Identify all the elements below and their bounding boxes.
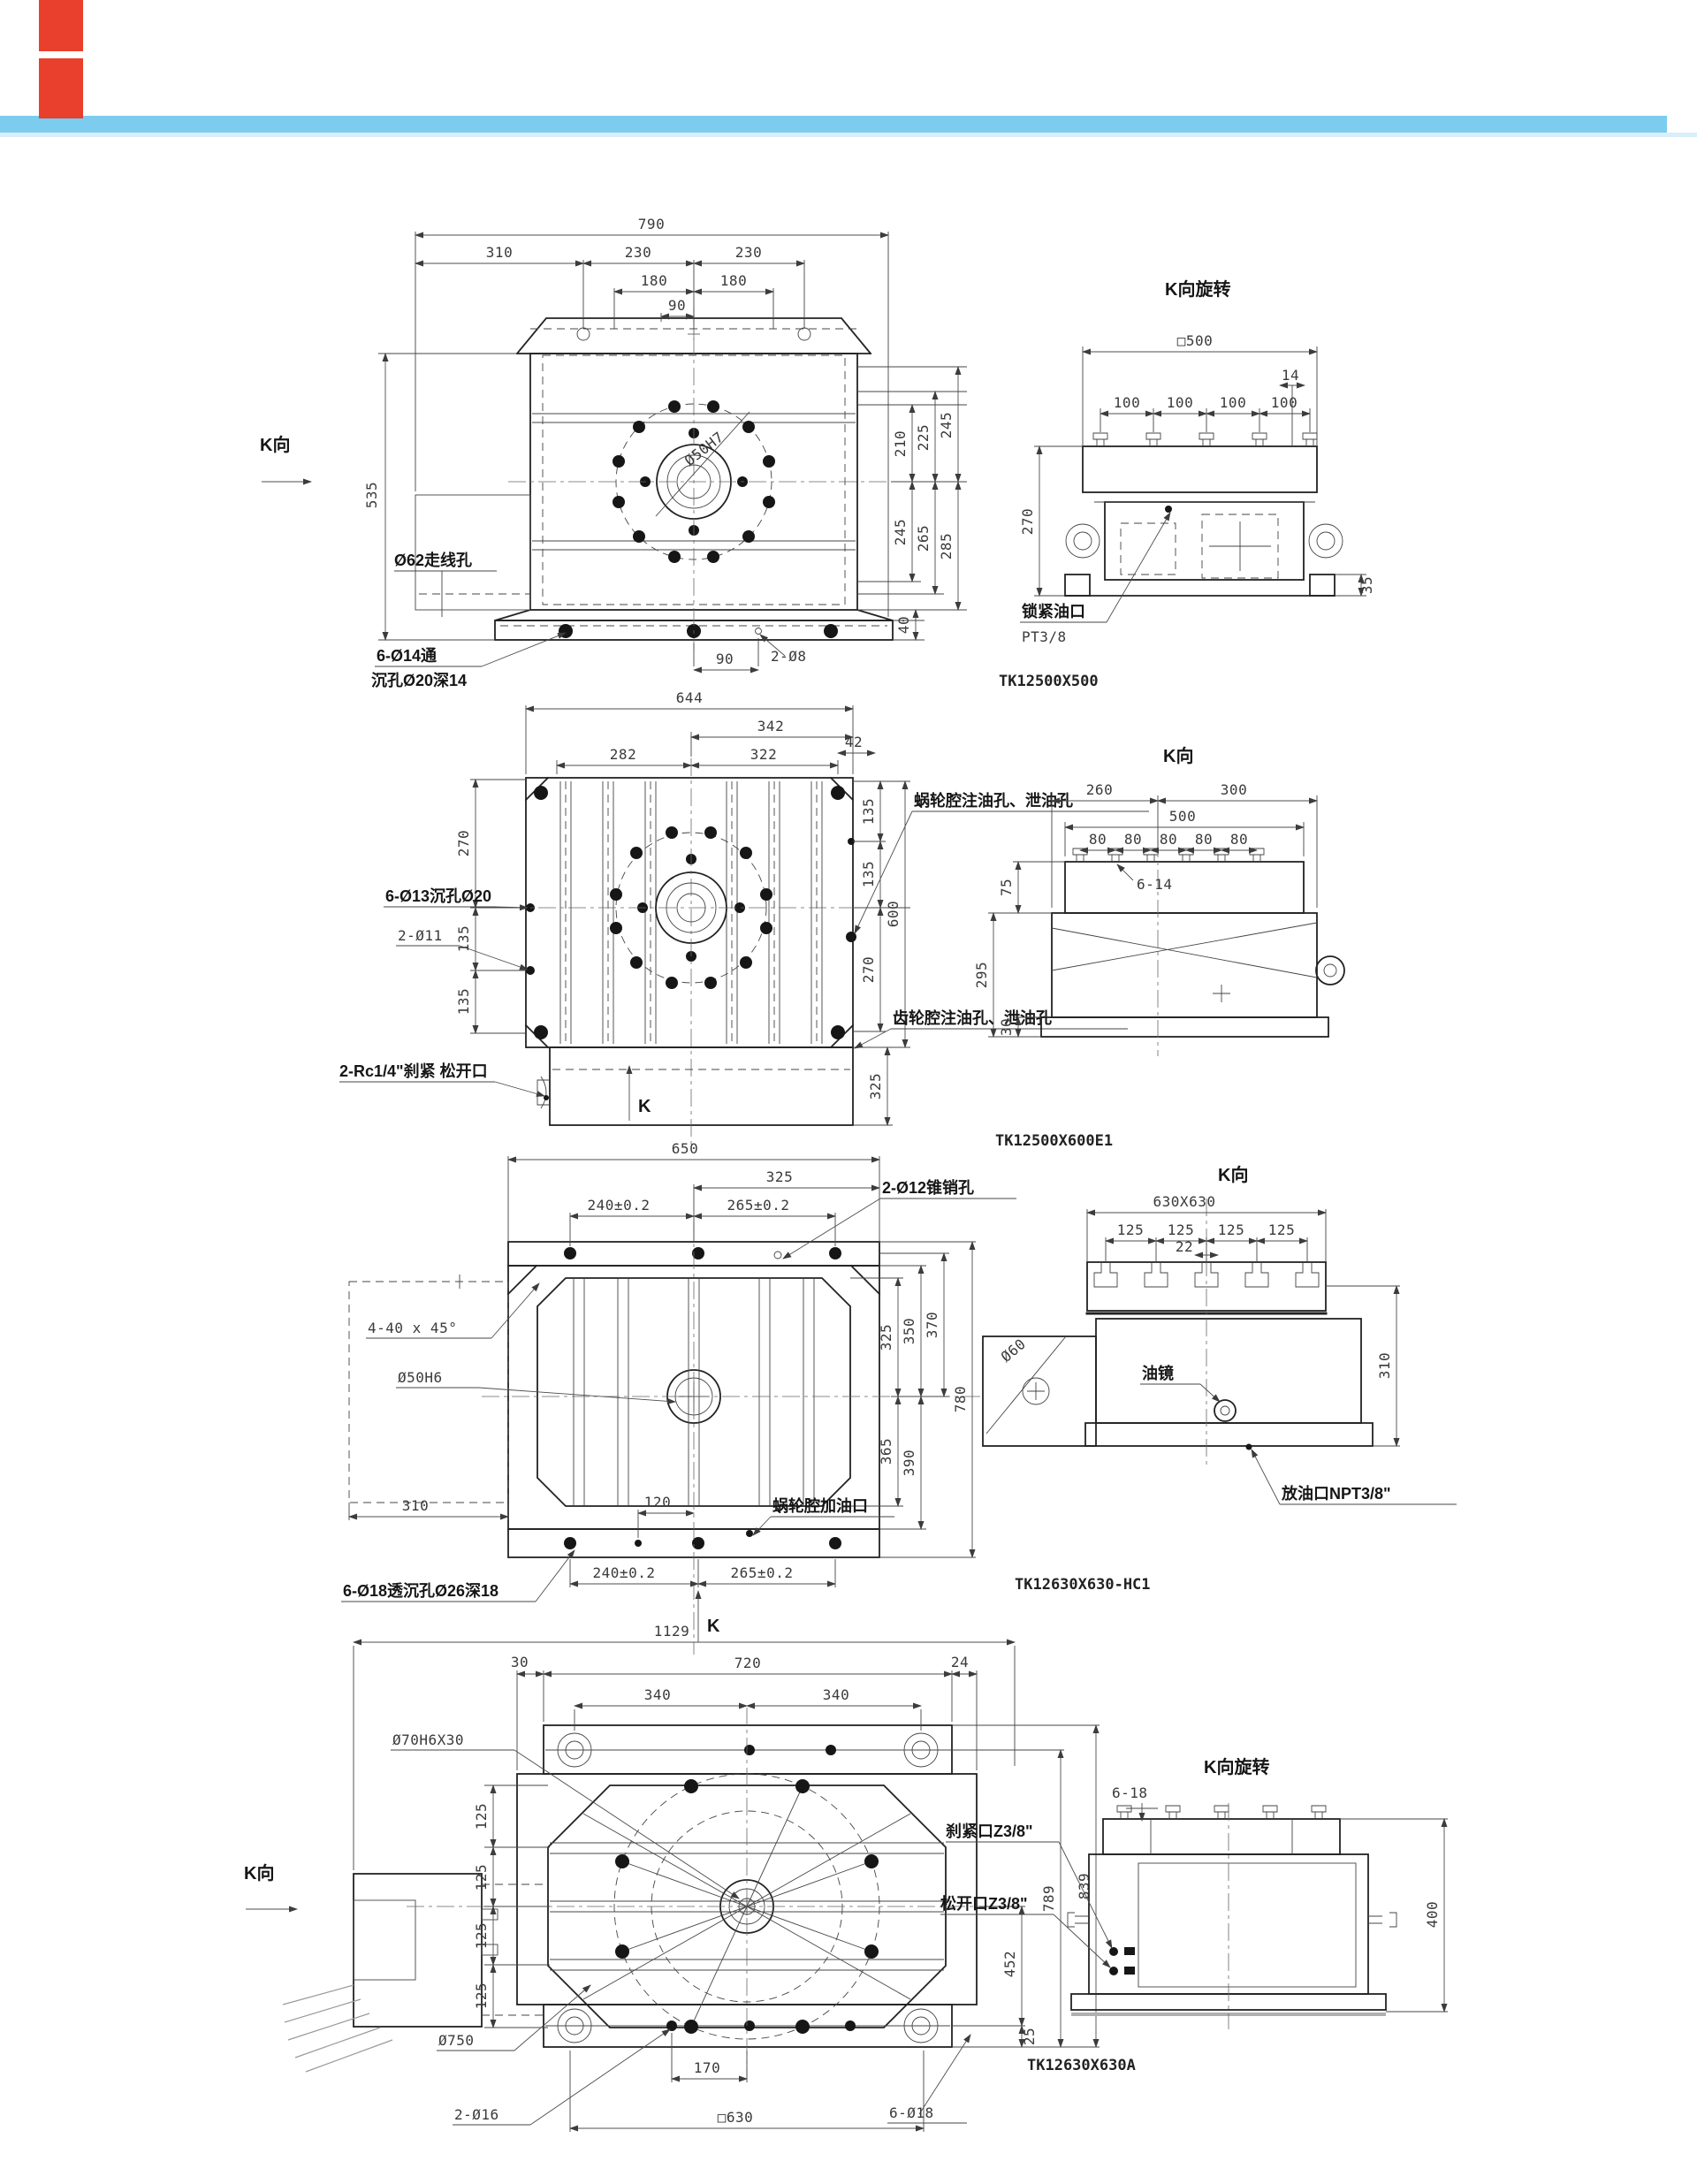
dim: 80 <box>1089 831 1107 848</box>
label-gear-oil-holes: 齿轮腔注油孔、泄油孔 <box>893 1008 1052 1027</box>
label-mount-holes: 6-Ø18 <box>889 2104 934 2121</box>
dim: 300 <box>1221 781 1247 798</box>
label-lock-oil-port: 锁紧油口 <box>1022 602 1085 620</box>
catalog-page: 790 310 230 230 180 180 90 535 210 225 2… <box>0 0 1697 2184</box>
label-pin-holes: 2-Ø16 <box>454 2106 499 2123</box>
dim: 100 <box>1114 394 1140 411</box>
dim: 25 <box>1021 2028 1038 2045</box>
dim: 240±0.2 <box>593 1564 656 1581</box>
dim: 35 <box>1358 576 1375 594</box>
dim: 100 <box>1220 394 1246 411</box>
drawing-tk12500x500: 790 310 230 230 180 180 90 535 210 225 2… <box>260 216 1375 690</box>
dim: 80 <box>1195 831 1213 848</box>
dim: 135 <box>860 798 877 825</box>
label-counterbore: 6-Ø13沉孔Ø20 <box>385 887 491 905</box>
dimension-lines <box>993 801 1317 1037</box>
dim: 125 <box>1117 1221 1144 1238</box>
model-code: TK12500X500 <box>999 673 1099 690</box>
dim-table-size: 630X630 <box>1153 1193 1216 1210</box>
dim: 839 <box>1076 1873 1092 1899</box>
dim: 14 <box>1282 367 1299 384</box>
dim: 245 <box>938 412 955 438</box>
front-view-linework: 644 342 282 322 42 270 135 135 135 135 2… <box>339 689 1149 1149</box>
label-wire-hole: Ø62走线孔 <box>394 551 472 569</box>
label-counterbore-2: 沉孔Ø20深14 <box>371 671 467 689</box>
label-center-bore: Ø50H6 <box>398 1369 443 1386</box>
front-view-linework: 650 325 240±0.2 265±0.2 325 350 370 365 … <box>341 1140 1016 1655</box>
dim: 90 <box>668 297 686 314</box>
dim: 322 <box>750 746 777 763</box>
drawing-tk12500x600e1: 644 342 282 322 42 270 135 135 135 135 2… <box>339 689 1344 1150</box>
dim: 75 <box>998 879 1015 896</box>
dim: 42 <box>845 734 863 750</box>
dim: 282 <box>610 746 636 763</box>
view-arrow-label: K <box>638 1097 651 1116</box>
dim: 270 <box>455 830 472 856</box>
dim: 789 <box>1040 1885 1057 1912</box>
drawing-tk12630x630a: 1129 30 720 24 340 340 125 125 125 125 4… <box>244 1623 1448 2132</box>
label-shaft-dia: Ø60 <box>998 1336 1030 1366</box>
dim: 230 <box>735 244 762 261</box>
dim: 210 <box>892 430 909 457</box>
dim-overall-width: 790 <box>638 216 665 232</box>
model-code: TK12500X600E1 <box>995 1132 1113 1150</box>
dim: 270 <box>860 956 877 983</box>
dim: 100 <box>1167 394 1193 411</box>
dim: 230 <box>625 244 651 261</box>
label-chamfer: 4-40 x 45° <box>368 1320 457 1336</box>
label-center-bore: Ø70H6X30 <box>392 1731 464 1748</box>
dim: 135 <box>455 925 472 952</box>
side-view-linework: K向旋转 6-18 400 刹紧口Z3/8" 松开口Z3/8" <box>940 1756 1448 2029</box>
dim: 265±0.2 <box>727 1197 790 1214</box>
dim: 125 <box>1168 1221 1194 1238</box>
dim: 650 <box>672 1140 698 1157</box>
dim: 125 <box>473 1982 490 2009</box>
dim: 170 <box>694 2059 720 2076</box>
label-drain-port: 放油口NPT3/8" <box>1281 1484 1391 1503</box>
dim: 325 <box>867 1073 884 1100</box>
label-release-port: 松开口Z3/8" <box>940 1894 1028 1913</box>
dim: 720 <box>734 1655 761 1671</box>
dim: 24 <box>951 1654 969 1670</box>
dim: 400 <box>1424 1901 1441 1928</box>
dim: 125 <box>473 1803 490 1830</box>
dim: 310 <box>402 1497 429 1514</box>
dim: 1129 <box>654 1623 690 1640</box>
dim: 120 <box>644 1494 671 1511</box>
dim: 40 <box>895 616 912 634</box>
dim: 80 <box>1230 831 1248 848</box>
dim: 90 <box>716 651 734 667</box>
dim: 780 <box>952 1386 969 1412</box>
view-arrow-label: K <box>707 1617 720 1636</box>
dimension-lines <box>1087 1213 1457 1504</box>
dim: 310 <box>1376 1352 1393 1379</box>
dim: 310 <box>486 244 513 261</box>
dim: 265 <box>915 525 932 552</box>
front-view-linework: 790 310 230 230 180 180 90 535 210 225 2… <box>260 216 967 689</box>
dim: 100 <box>1271 394 1297 411</box>
dim: 135 <box>860 861 877 887</box>
dim: 370 <box>924 1312 940 1338</box>
side-view-linework: K向旋转 □500 14 100 100 100 100 270 35 锁紧油口… <box>1019 278 1375 645</box>
label-oil-sight-glass: 油镜 <box>1142 1364 1174 1382</box>
dim: 500 <box>1169 808 1196 825</box>
label-tslots: 6-18 <box>1112 1784 1148 1801</box>
front-view-linework: 1129 30 720 24 340 340 125 125 125 125 4… <box>244 1623 1100 2132</box>
label-counterbore-1: 6-Ø14通 <box>377 647 437 665</box>
dim: 180 <box>720 272 747 289</box>
side-view-title: K向 <box>1218 1164 1248 1185</box>
dim: 340 <box>823 1686 849 1703</box>
label-table-dia: Ø750 <box>438 2032 475 2049</box>
view-direction-label: K向 <box>244 1862 274 1883</box>
dim: 390 <box>901 1450 917 1476</box>
dim: 295 <box>973 962 990 988</box>
label-taper-pin-holes: 2-Ø12锥销孔 <box>882 1178 974 1197</box>
label-worm-oil-fill: 蜗轮腔加油口 <box>772 1496 868 1515</box>
label-clamp-port: 刹紧口Z3/8" <box>946 1823 1033 1840</box>
label-lock-oil-port-thread: PT3/8 <box>1022 628 1067 645</box>
dim: 452 <box>1001 1951 1018 1977</box>
technical-drawings-canvas: 790 310 230 230 180 180 90 535 210 225 2… <box>0 0 1697 2184</box>
dim: 180 <box>641 272 667 289</box>
model-code: TK12630X630-HC1 <box>1015 1576 1151 1594</box>
dim: 125 <box>1268 1221 1295 1238</box>
dim: 365 <box>878 1438 894 1465</box>
dim-square-size: □630 <box>718 2109 754 2126</box>
view-direction-label: K向 <box>260 434 290 455</box>
side-view-title: K向旋转 <box>1165 278 1230 300</box>
dim: 22 <box>1176 1238 1193 1255</box>
label-brake-ports: 2-Rc1/4"刹紧 松开口 <box>339 1062 488 1080</box>
side-view-title: K向 <box>1163 745 1193 766</box>
side-view-linework: K向 630X630 125 125 125 125 22 Ø60 310 油镜… <box>983 1164 1457 1504</box>
dim: 125 <box>1218 1221 1244 1238</box>
dim: 350 <box>901 1318 917 1344</box>
dim: 30 <box>511 1654 529 1670</box>
dim: 30 <box>998 1018 1015 1036</box>
dim: 265±0.2 <box>731 1564 794 1581</box>
dim: 80 <box>1160 831 1177 848</box>
dim-height: 535 <box>363 482 380 508</box>
side-view-title: K向旋转 <box>1204 1756 1269 1777</box>
label-tslot: 6-14 <box>1137 876 1173 893</box>
dim: 245 <box>892 519 909 545</box>
label-through-counterbore: 6-Ø18透沉孔Ø26深18 <box>343 1581 498 1600</box>
label-worm-oil-holes: 蜗轮腔注油孔、泄油孔 <box>914 791 1073 810</box>
dim: 270 <box>1019 508 1036 535</box>
dim: 340 <box>644 1686 671 1703</box>
dim: 125 <box>473 1922 490 1949</box>
dim-table-size: □500 <box>1177 332 1214 349</box>
label-pin-holes: 2-Ø11 <box>398 927 443 944</box>
dim: 260 <box>1086 781 1113 798</box>
dimension-lines <box>246 1642 1096 2128</box>
label-pin-holes: 2-Ø8 <box>771 648 807 665</box>
dim: 240±0.2 <box>588 1197 651 1214</box>
dim: 125 <box>473 1864 490 1891</box>
ports <box>1109 1947 1135 1975</box>
dim: 80 <box>1124 831 1142 848</box>
dimension-lines <box>341 1160 1016 1642</box>
dim: 225 <box>915 424 932 451</box>
drawing-tk12630x630-hc1: 650 325 240±0.2 265±0.2 325 350 370 365 … <box>341 1140 1457 1655</box>
model-code: TK12630X630A <box>1027 2057 1136 2074</box>
dim: 325 <box>766 1168 793 1185</box>
dim: 325 <box>878 1324 894 1351</box>
dim: 285 <box>938 533 955 559</box>
dim: 600 <box>885 901 902 927</box>
dim: 135 <box>455 988 472 1015</box>
dim: 342 <box>757 718 784 734</box>
dim: 644 <box>676 689 703 706</box>
